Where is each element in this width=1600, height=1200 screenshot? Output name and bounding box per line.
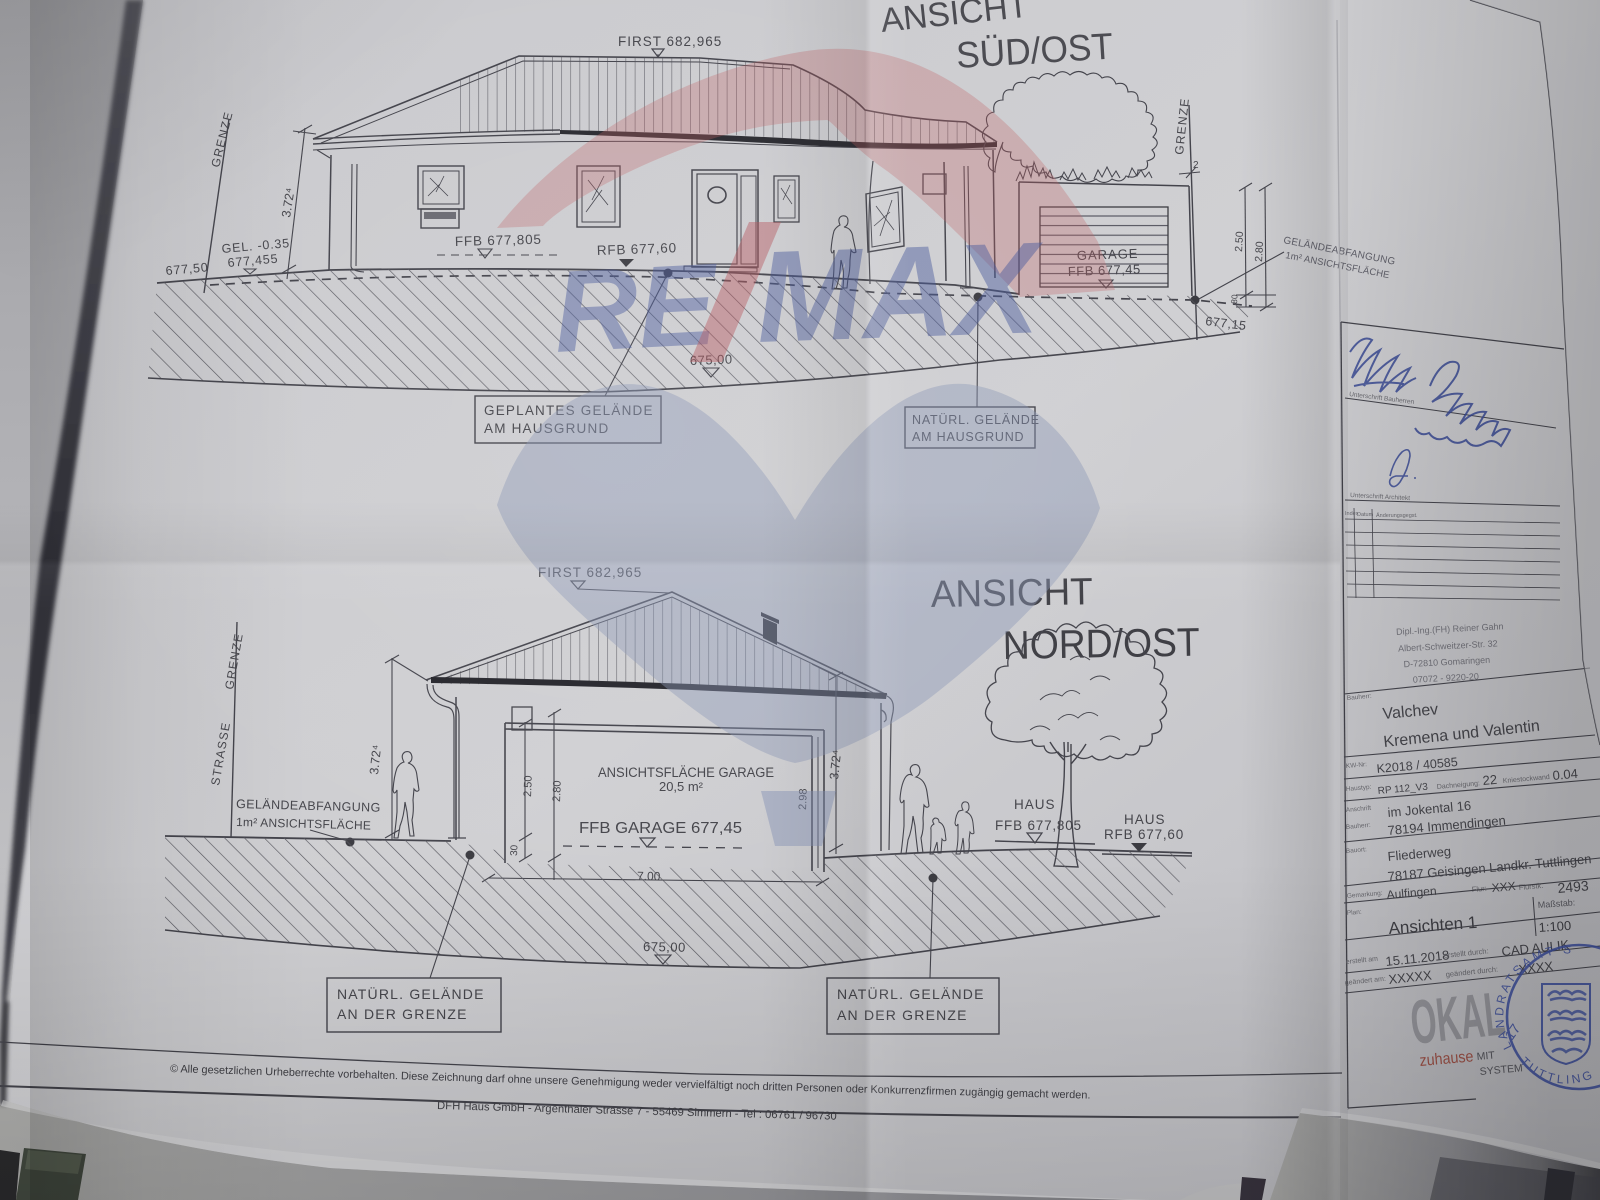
- svg-text:HAUS: HAUS: [1124, 812, 1166, 827]
- svg-text:2: 2: [1193, 160, 1199, 171]
- svg-text:FFB 677,805: FFB 677,805: [995, 818, 1082, 833]
- svg-text:RFB 677,60: RFB 677,60: [1104, 827, 1184, 842]
